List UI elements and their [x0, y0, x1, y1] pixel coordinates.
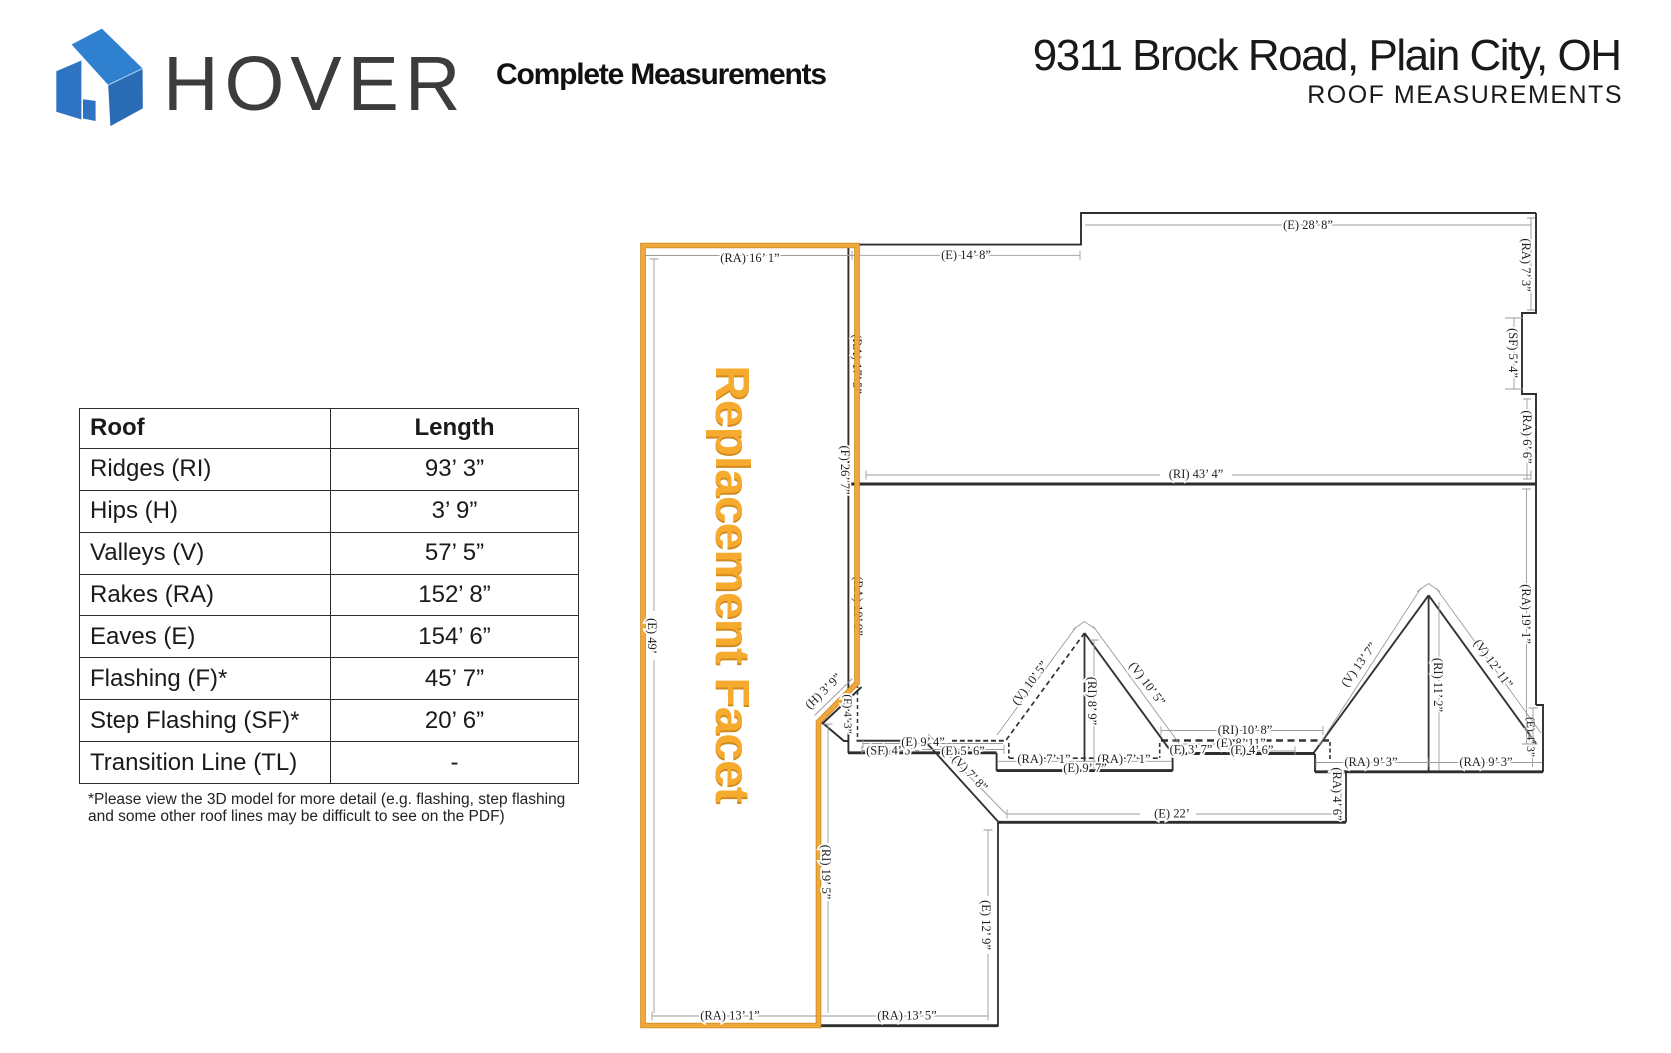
svg-text:(RA) 6’ 6”: (RA) 6’ 6”	[1520, 410, 1534, 463]
svg-text:(E) 14’ 8”: (E) 14’ 8”	[941, 248, 991, 262]
svg-text:(E) 22’: (E) 22’	[1154, 807, 1190, 821]
svg-text:Replacement Facet: Replacement Facet	[705, 365, 758, 803]
svg-text:(E) 9’ 4”: (E) 9’ 4”	[901, 735, 945, 749]
svg-text:(E) 49’: (E) 49’	[645, 618, 659, 654]
svg-text:(E) 28’ 8”: (E) 28’ 8”	[1283, 218, 1333, 232]
svg-text:(RA) 9’ 3”: (RA) 9’ 3”	[1459, 755, 1512, 769]
svg-text:(RA) 13’ 5”: (RA) 13’ 5”	[877, 1009, 936, 1023]
svg-text:(RA) 19’ 1”: (RA) 19’ 1”	[1519, 584, 1533, 643]
svg-text:(V) 10’ 5”: (V) 10’ 5”	[1126, 659, 1168, 708]
svg-text:(RI) 11’ 2”: (RI) 11’ 2”	[1431, 658, 1445, 712]
svg-text:(RA) 7’ 3”: (RA) 7’ 3”	[1519, 238, 1533, 291]
svg-text:(RI) 10’ 8”: (RI) 10’ 8”	[1218, 723, 1273, 737]
svg-text:(F) 4’ 6”: (F) 4’ 6”	[1231, 743, 1274, 757]
svg-text:(F) 4’ 3”: (F) 4’ 3”	[841, 694, 853, 733]
svg-text:(V) 10’ 5”: (V) 10’ 5”	[1009, 658, 1051, 707]
svg-text:(E) 4’ 3”: (E) 4’ 3”	[1524, 717, 1536, 757]
svg-text:(RI) 43’ 4”: (RI) 43’ 4”	[1169, 467, 1224, 481]
svg-text:(F) 26’ 7”: (F) 26’ 7”	[838, 445, 852, 494]
svg-text:(RA) 9’ 3”: (RA) 9’ 3”	[1344, 755, 1397, 769]
svg-text:(E) 12’ 9”: (E) 12’ 9”	[979, 900, 993, 950]
svg-text:(E) 9’ 7”: (E) 9’ 7”	[1063, 761, 1107, 775]
svg-text:(V) 13’ 7”: (V) 13’ 7”	[1338, 640, 1379, 690]
svg-text:(RI) 19’ 5”: (RI) 19’ 5”	[819, 845, 833, 900]
svg-text:(RI) 8’ 9”: (RI) 8’ 9”	[1085, 677, 1099, 725]
svg-text:(F) 3’ 7”: (F) 3’ 7”	[1170, 743, 1213, 757]
svg-text:(RA) 13’ 1”: (RA) 13’ 1”	[700, 1009, 759, 1023]
svg-text:(RA) 4’ 6”: (RA) 4’ 6”	[1330, 767, 1344, 820]
svg-text:(SF) 5’ 4”: (SF) 5’ 4”	[1506, 328, 1520, 378]
svg-text:(RA) 16’ 1”: (RA) 16’ 1”	[720, 251, 779, 265]
